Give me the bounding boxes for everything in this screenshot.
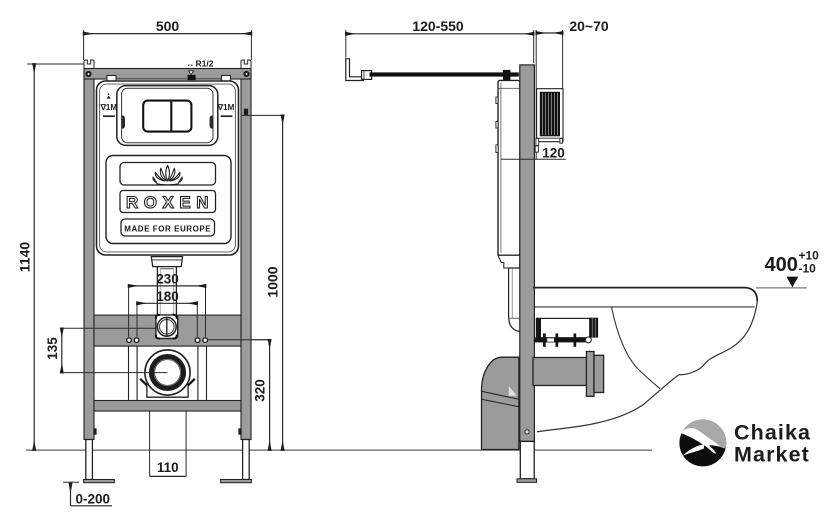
svg-text:120-550: 120-550 <box>412 18 464 34</box>
svg-text:110: 110 <box>157 460 179 475</box>
svg-text:ROXEN: ROXEN <box>126 193 214 212</box>
svg-text:MADE FOR EUROPE: MADE FOR EUROPE <box>124 225 211 234</box>
svg-text:1000: 1000 <box>265 266 281 297</box>
svg-text:-10: -10 <box>799 262 817 276</box>
svg-text:1140: 1140 <box>17 242 33 273</box>
svg-text:∇1M: ∇1M <box>217 103 235 112</box>
svg-text:500: 500 <box>156 18 180 34</box>
svg-text:0-200: 0-200 <box>76 491 111 506</box>
svg-text:Market: Market <box>734 443 810 467</box>
svg-text:400: 400 <box>765 254 798 276</box>
svg-text:320: 320 <box>253 379 268 402</box>
svg-text:R1/2: R1/2 <box>196 59 214 69</box>
svg-text:∇1M: ∇1M <box>100 103 118 112</box>
svg-text:120: 120 <box>542 145 565 160</box>
svg-text:230: 230 <box>156 271 179 286</box>
svg-text:Chaika: Chaika <box>734 421 811 445</box>
svg-text:180: 180 <box>156 289 179 304</box>
svg-text:20~70: 20~70 <box>569 18 609 34</box>
svg-text:135: 135 <box>45 337 60 360</box>
svg-text:+10: +10 <box>799 249 820 263</box>
